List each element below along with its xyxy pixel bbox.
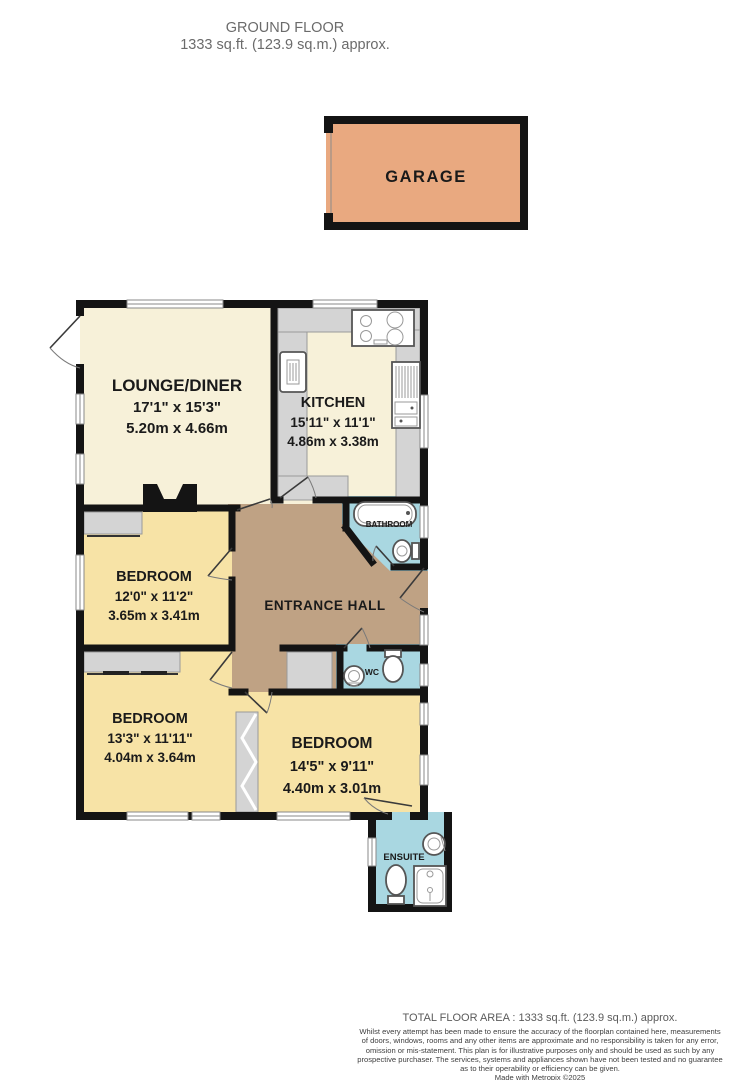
lounge-imp: 17'1" x 15'3" [133,399,221,416]
toilet-icon [383,650,403,682]
bedmid-imp: 12'0" x 11'2" [115,589,194,604]
floorplan-page: GROUND FLOOR 1333 sq.ft. (123.9 sq.m.) a… [0,0,741,1080]
kitchen-name: KITCHEN [301,395,365,411]
lounge-name: LOUNGE/DINER [112,376,242,395]
garage-label: GARAGE [385,168,466,186]
fireplace [143,484,197,512]
wc-name: WC [365,667,379,677]
window [420,506,428,538]
bedmid-name: BEDROOM [116,569,192,585]
window [76,454,84,484]
bedleft-met: 4.04m x 3.64m [104,750,196,765]
disclaimer: Whilst every attempt has been made to en… [330,1027,741,1080]
window [420,755,428,785]
bedleft-imp: 13'3" x 11'11" [107,731,192,746]
window [277,812,350,820]
window [420,664,428,686]
plan-footer: TOTAL FLOOR AREA : 1333 sq.ft. (123.9 sq… [330,1012,741,1080]
ensuite-name: ENSUITE [383,852,424,863]
window [127,300,223,308]
window [192,812,220,820]
toilet-icon [393,540,419,562]
wall-stub [324,213,333,230]
bathroom-name: BATHROOM [366,520,413,529]
basin-icon [423,833,445,855]
wardrobe-handle [103,671,129,675]
bedleft-name: BEDROOM [112,711,188,727]
shower-icon [414,866,446,906]
room-bedroom-right [232,692,424,816]
window [76,394,84,424]
garage-block: GARAGE [324,116,526,230]
window [76,555,84,610]
wardrobe-handle [141,671,167,675]
window [420,615,428,645]
total-floor-area: TOTAL FLOOR AREA : 1333 sq.ft. (123.9 sq… [330,1012,741,1024]
wardrobe [84,652,180,672]
hall-name: ENTRANCE HALL [264,598,385,613]
door-front [50,316,80,368]
oven-icon [280,352,306,392]
window [368,838,376,866]
bedright-met: 4.40m x 3.01m [283,781,381,797]
window [313,300,377,308]
window [127,812,188,820]
bedright-name: BEDROOM [292,735,373,752]
sink-drainer-icon [392,362,420,428]
credit: Made with Metropix ©2025 [330,1073,741,1080]
hall-closet [287,652,332,692]
wardrobe [84,512,142,534]
lounge-met: 5.20m x 4.66m [126,420,228,437]
window [420,703,428,725]
hob-icon [352,310,414,346]
window [420,395,428,448]
wall-stub [324,116,333,133]
kitchen-met: 4.86m x 3.38m [287,434,379,449]
toilet-icon [386,865,406,904]
kitchen-imp: 15'11" x 11'1" [290,415,375,430]
floorplan-drawing: GARAGE [0,0,741,1080]
bedright-imp: 14'5" x 9'11" [290,759,374,775]
basin-icon [344,666,364,686]
bedmid-met: 3.65m x 3.41m [108,608,200,623]
